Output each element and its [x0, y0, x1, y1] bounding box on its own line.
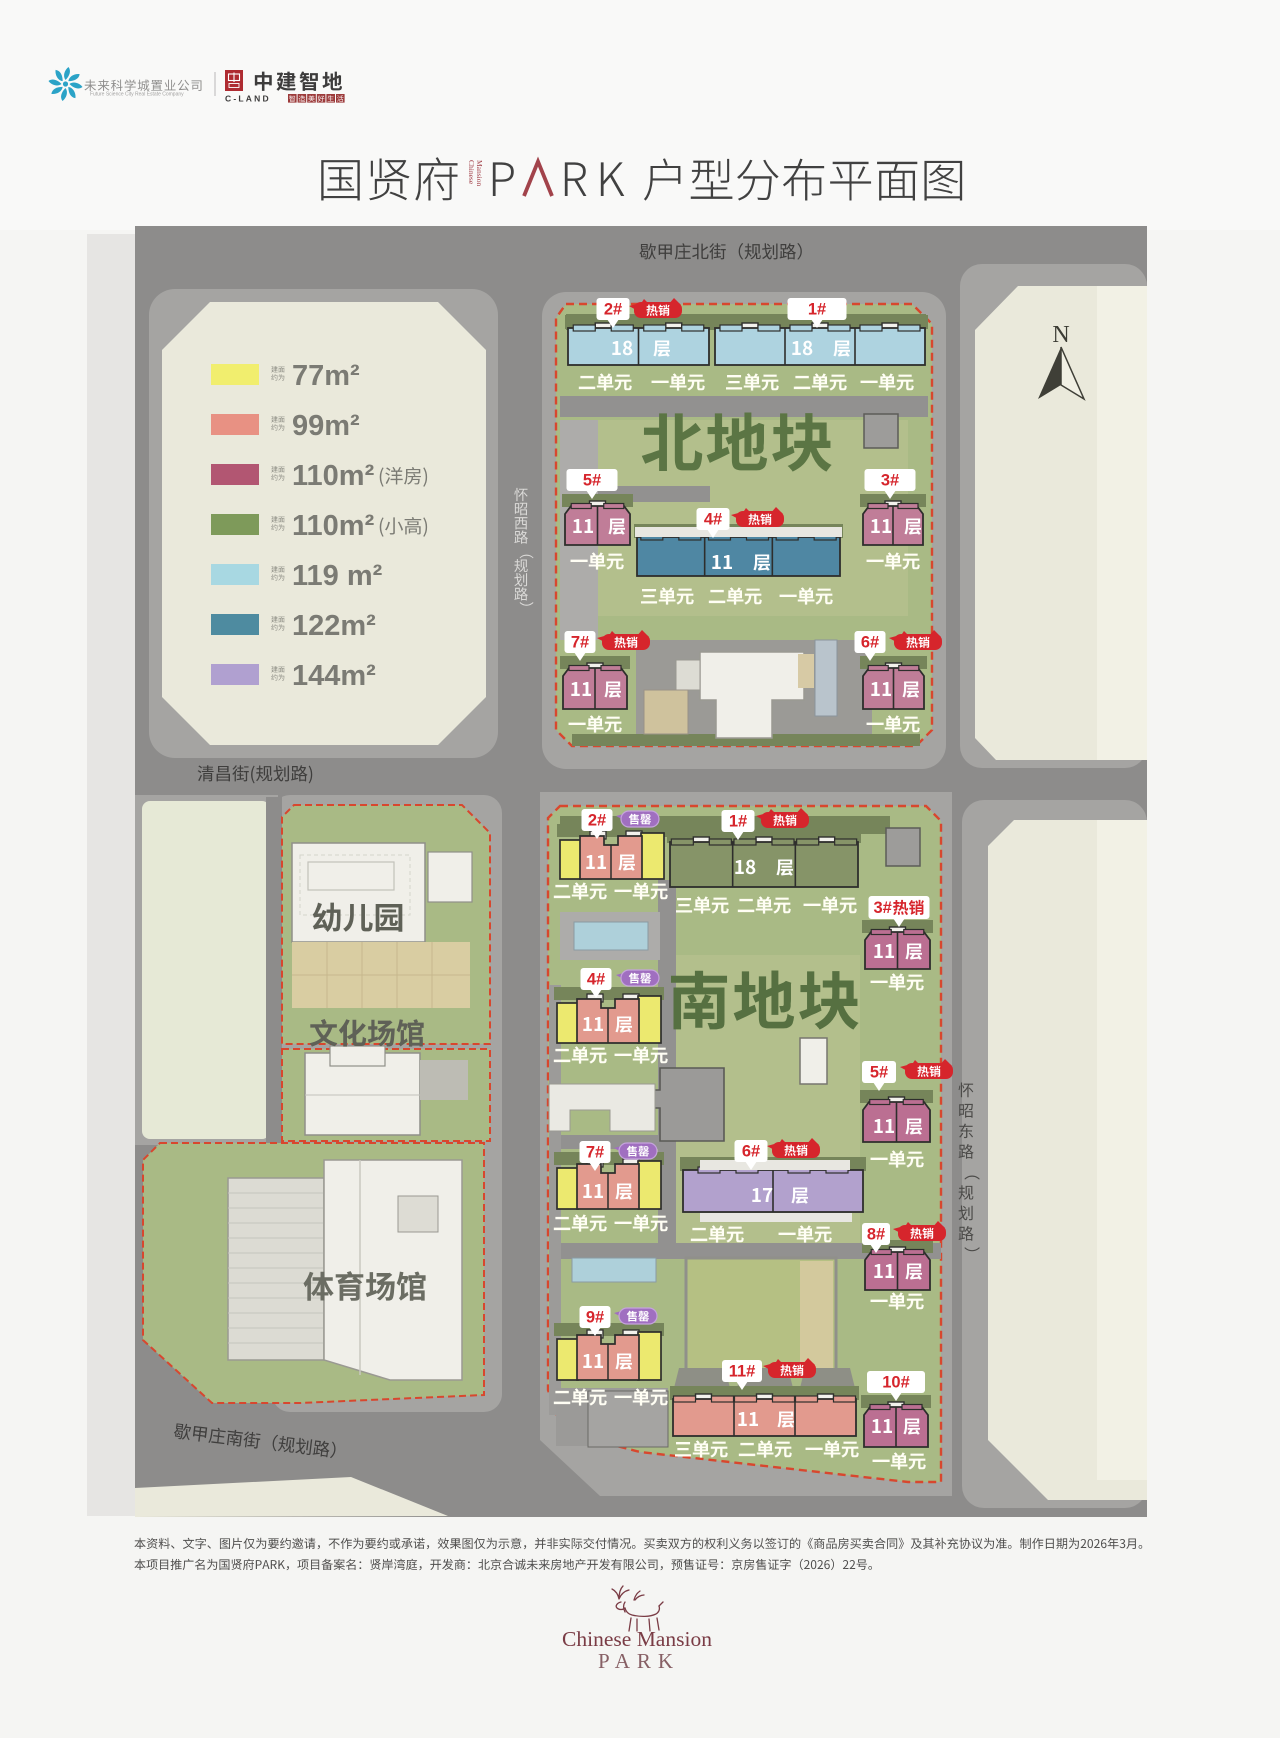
svg-text:77m²: 77m² — [292, 360, 360, 392]
svg-text:11#: 11# — [729, 1363, 756, 1381]
svg-text:Chinese Mansion: Chinese Mansion — [562, 1627, 712, 1651]
svg-text:1#: 1# — [808, 301, 826, 319]
svg-text:4#: 4# — [587, 971, 605, 989]
svg-text:110m²: 110m² — [292, 510, 375, 542]
svg-text:2#: 2# — [604, 301, 622, 319]
svg-text:N: N — [1052, 322, 1069, 348]
svg-text:6#: 6# — [742, 1143, 760, 1161]
svg-text:8#: 8# — [867, 1226, 885, 1244]
svg-text:Future Science City Real Estat: Future Science City Real Estate Company — [90, 92, 184, 98]
svg-text:144m²: 144m² — [292, 660, 376, 692]
svg-text:PARK: PARK — [598, 1649, 680, 1673]
svg-text:5#: 5# — [870, 1064, 888, 1082]
svg-text:Chinese: Chinese — [467, 160, 476, 185]
svg-text:6#: 6# — [861, 634, 879, 652]
svg-text:99m²: 99m² — [292, 410, 360, 442]
svg-text:3#: 3# — [874, 899, 892, 917]
svg-text:7#: 7# — [586, 1144, 604, 1162]
svg-text:4#: 4# — [704, 511, 722, 529]
svg-text:119 m²: 119 m² — [292, 560, 383, 592]
svg-text:5#: 5# — [583, 472, 601, 490]
svg-text:C-LAND: C-LAND — [225, 94, 271, 104]
svg-text:10#: 10# — [882, 1374, 910, 1392]
svg-text:1#: 1# — [729, 813, 747, 831]
svg-text:7#: 7# — [571, 634, 589, 652]
svg-text:110m²: 110m² — [292, 460, 375, 492]
svg-text:9#: 9# — [586, 1309, 604, 1327]
svg-text:2#: 2# — [588, 812, 606, 830]
svg-text:122m²: 122m² — [292, 610, 376, 642]
svg-text:Mansion: Mansion — [475, 160, 484, 187]
svg-text:3#: 3# — [881, 472, 899, 490]
